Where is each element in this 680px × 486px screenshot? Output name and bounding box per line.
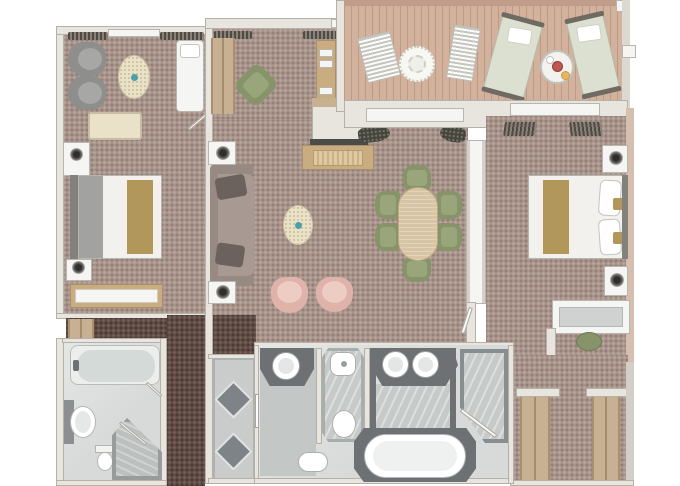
wc-divider-wall bbox=[316, 348, 322, 444]
mbath-wall-right bbox=[508, 345, 514, 484]
closet-wall bbox=[516, 388, 560, 397]
food-plate bbox=[552, 61, 563, 72]
oval-rug-table bbox=[118, 55, 150, 99]
sink-basin bbox=[75, 411, 91, 433]
chair-seat bbox=[407, 170, 427, 186]
shower-room-wall-bottom bbox=[208, 478, 258, 484]
dresser bbox=[70, 284, 163, 308]
foyer-armchair-cushion bbox=[241, 70, 271, 100]
vanity-side-wall bbox=[370, 348, 376, 430]
sink-basin bbox=[388, 357, 403, 372]
tub-chair bbox=[271, 277, 308, 313]
wardrobe-closet bbox=[520, 397, 550, 482]
bed-fold bbox=[79, 176, 103, 258]
wardrobe-closet bbox=[592, 397, 620, 482]
double-bed bbox=[78, 175, 162, 259]
deck-table bbox=[540, 50, 574, 84]
toilet bbox=[332, 410, 356, 438]
sliding-door-window bbox=[510, 103, 600, 116]
tub-chair-cushion bbox=[322, 281, 347, 303]
armchair-cushion bbox=[78, 82, 102, 104]
floor-plan bbox=[0, 0, 680, 486]
dining-table bbox=[398, 187, 438, 261]
chaise-pillow bbox=[180, 44, 200, 58]
chair-seat bbox=[441, 227, 457, 247]
dressing-wall-bottom bbox=[510, 480, 634, 486]
food-plate bbox=[561, 71, 570, 80]
armchair bbox=[68, 42, 106, 76]
bed-headboard bbox=[70, 175, 78, 259]
dining-chair bbox=[375, 223, 400, 251]
coffee-table-decor bbox=[295, 222, 302, 229]
wall-panel bbox=[622, 45, 636, 58]
window bbox=[108, 29, 160, 37]
bench bbox=[88, 112, 142, 140]
bathtub bbox=[70, 345, 160, 385]
stool bbox=[576, 332, 602, 351]
lamp bbox=[70, 148, 83, 161]
veranda-rail bbox=[344, 0, 626, 6]
bath1-wall-left bbox=[56, 338, 64, 486]
bed-runner bbox=[543, 180, 569, 254]
vanity-floor bbox=[374, 384, 454, 430]
sofa bbox=[210, 164, 256, 286]
lamp bbox=[609, 151, 623, 165]
vanity-side-wall bbox=[450, 348, 456, 430]
sideboard bbox=[302, 145, 374, 170]
dresser-front bbox=[75, 289, 158, 303]
sink-basin bbox=[278, 358, 294, 374]
curtain bbox=[569, 122, 603, 136]
bed-runner bbox=[127, 180, 153, 254]
curtain-valance bbox=[68, 32, 108, 40]
sink bbox=[412, 351, 439, 378]
sink-basin bbox=[418, 357, 433, 372]
closet-wall bbox=[586, 388, 630, 397]
lamp bbox=[216, 285, 230, 299]
dining-chair bbox=[437, 191, 462, 219]
wardrobe-closet bbox=[68, 319, 94, 339]
armchair-cushion bbox=[78, 48, 102, 70]
master-bathtub bbox=[364, 434, 466, 478]
table-decor bbox=[131, 74, 138, 81]
sofa-pillow bbox=[215, 242, 246, 268]
door-leaf bbox=[255, 394, 259, 428]
console-tray bbox=[319, 87, 333, 95]
toilet-bowl bbox=[97, 452, 113, 471]
dining-chair bbox=[375, 191, 400, 219]
desk-top bbox=[559, 307, 623, 327]
tub-chair-cushion bbox=[277, 281, 302, 303]
faucet bbox=[73, 360, 79, 371]
foyer-wall-top bbox=[205, 18, 348, 29]
bathtub-basin bbox=[77, 350, 155, 382]
dining-chair bbox=[403, 165, 431, 189]
chair-seat bbox=[380, 195, 396, 215]
round-mat bbox=[399, 46, 435, 82]
bidet-drain bbox=[341, 361, 347, 367]
bidet bbox=[330, 352, 356, 376]
sink bbox=[70, 406, 96, 438]
console-tray bbox=[319, 49, 333, 57]
curtain-valance bbox=[160, 32, 204, 40]
chair-seat bbox=[441, 195, 457, 215]
sink bbox=[272, 352, 300, 380]
lamp bbox=[72, 261, 85, 274]
curtain bbox=[503, 122, 537, 136]
partition-wardrobe bbox=[466, 140, 486, 304]
round-mat-ring bbox=[408, 55, 426, 73]
sliding-door-window bbox=[366, 108, 464, 122]
chair-seat bbox=[407, 261, 427, 277]
sink bbox=[382, 351, 409, 378]
chaise bbox=[176, 40, 204, 112]
bath1-wall-bottom bbox=[56, 480, 167, 486]
dressing-wall-right bbox=[626, 362, 634, 482]
lounger-pillow bbox=[507, 26, 533, 46]
lamp bbox=[610, 273, 624, 287]
dining-chair bbox=[403, 258, 431, 282]
corridor bbox=[167, 315, 205, 486]
double-bed bbox=[528, 175, 626, 259]
master-bathtub-basin bbox=[373, 441, 457, 471]
lamp bbox=[216, 146, 230, 160]
food-plate bbox=[546, 56, 554, 64]
bed-headboard bbox=[622, 175, 628, 259]
armchair bbox=[68, 76, 106, 110]
toilet bbox=[298, 452, 328, 472]
wardrobe-closet bbox=[211, 38, 235, 114]
tub-chair bbox=[316, 277, 353, 312]
dining-chair bbox=[437, 223, 462, 251]
lounger-pillow bbox=[576, 24, 602, 43]
desk bbox=[552, 300, 630, 334]
chair-seat bbox=[380, 227, 396, 247]
console-tray bbox=[319, 60, 333, 68]
sideboard-top bbox=[313, 150, 363, 166]
coffee-table bbox=[283, 205, 313, 245]
